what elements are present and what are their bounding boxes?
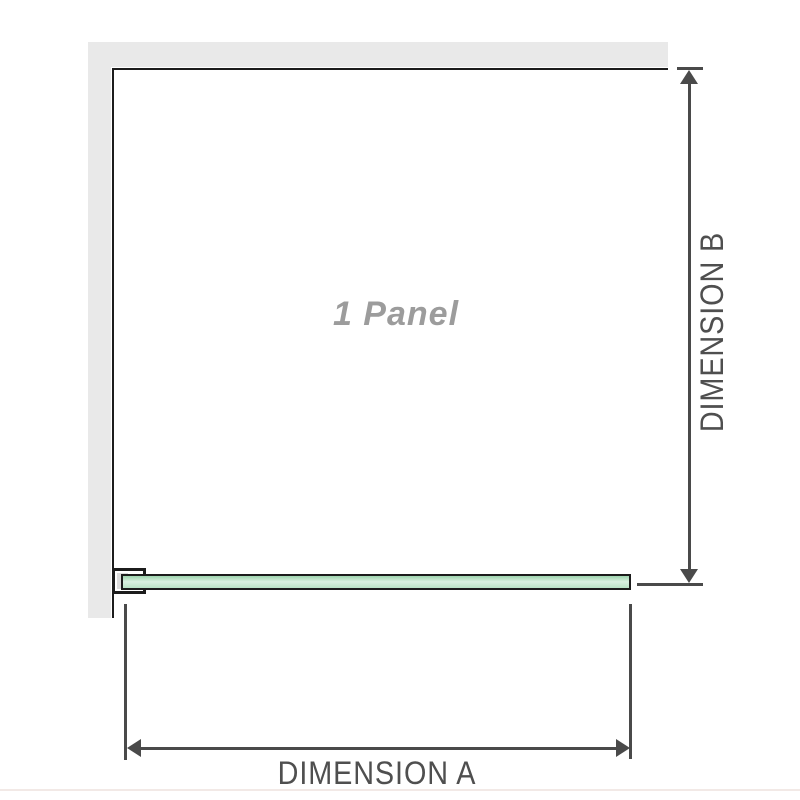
panel-count-label: 1 Panel bbox=[271, 294, 521, 334]
dimension-a-left-extension bbox=[124, 604, 127, 760]
footer-divider bbox=[0, 789, 800, 791]
arrow-down-icon bbox=[680, 569, 698, 583]
dimension-b-line bbox=[688, 82, 691, 570]
glass-panel bbox=[121, 574, 631, 590]
shower-screen-diagram: 1 Panel DIMENSION B DIMENSION A bbox=[0, 0, 800, 800]
dimension-a-right-extension bbox=[629, 604, 632, 759]
arrow-right-icon bbox=[616, 739, 630, 757]
wall-top bbox=[88, 42, 668, 67]
panel-left-edge bbox=[112, 68, 114, 618]
wall-left bbox=[88, 42, 111, 618]
panel-top-edge bbox=[112, 68, 668, 70]
dimension-a-label: DIMENSION A bbox=[242, 756, 512, 790]
dimension-b-bottom-tick bbox=[637, 583, 703, 586]
dimension-b-label: DIMENSION B bbox=[695, 197, 729, 467]
dimension-a-line bbox=[139, 747, 617, 750]
